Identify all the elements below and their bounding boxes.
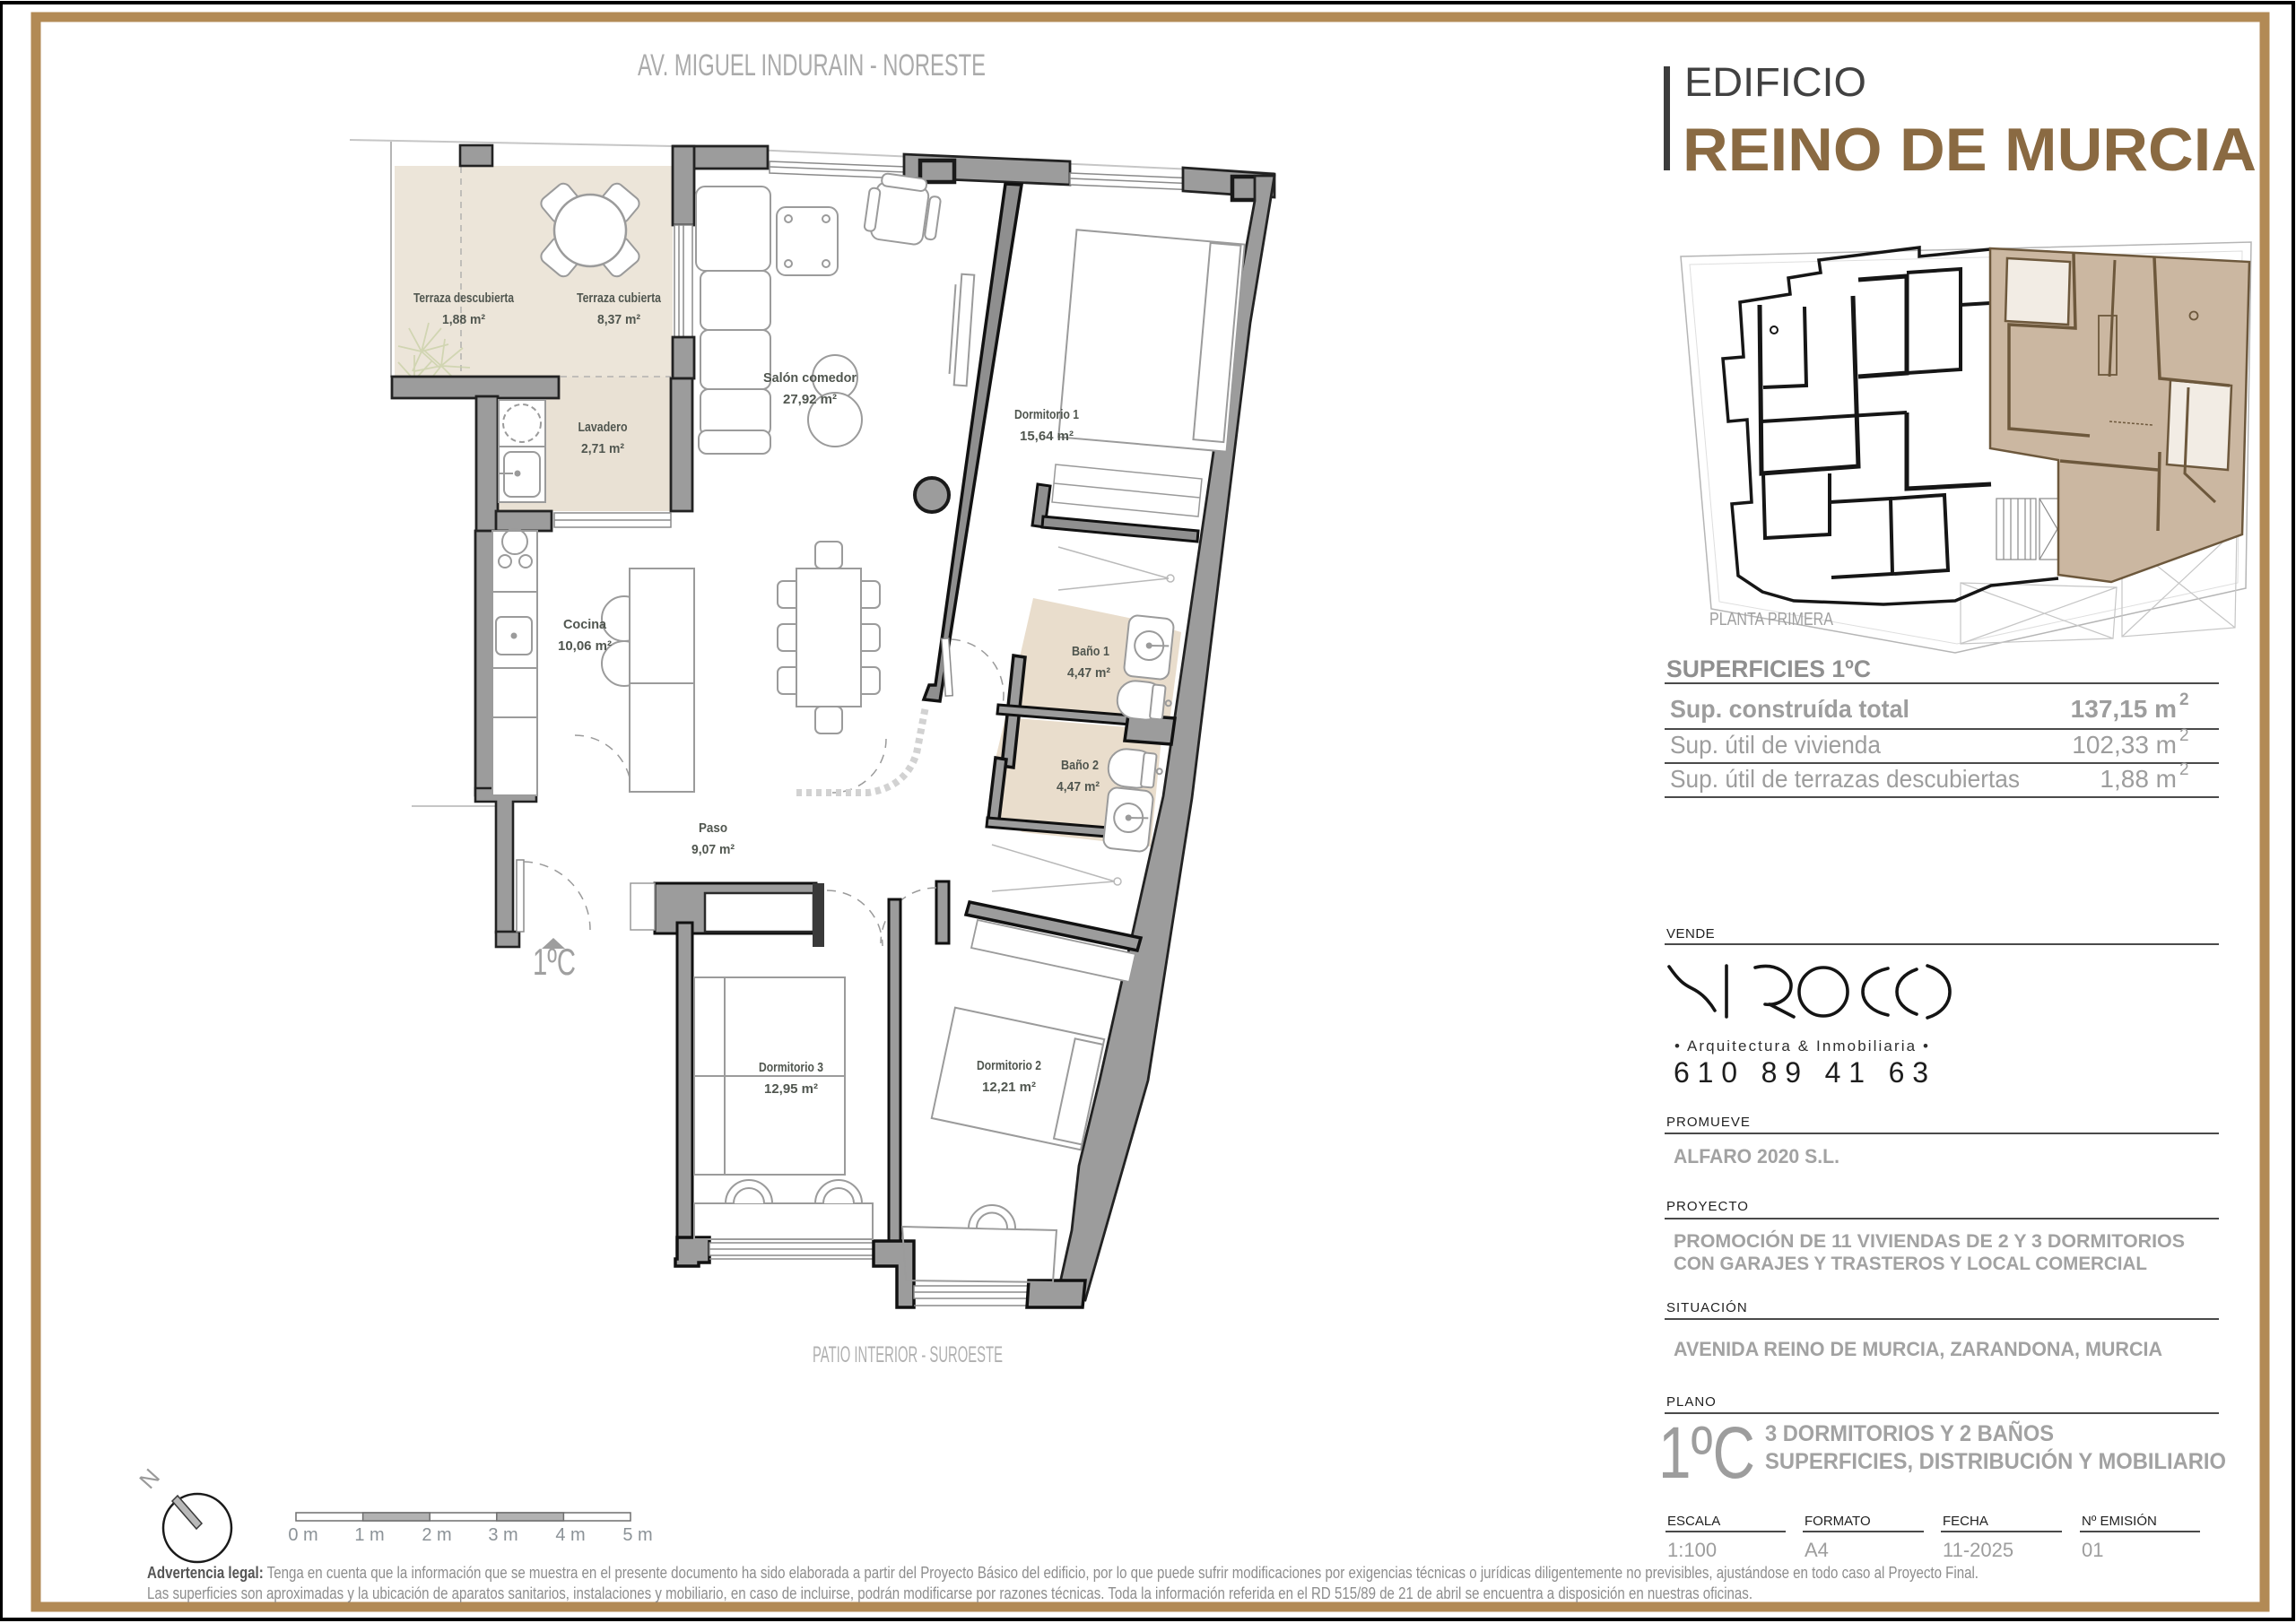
svg-text:137,15 m: 137,15 m — [2071, 695, 2177, 723]
svg-text:1,88 m: 1,88 m — [2100, 765, 2177, 793]
svg-text:Lavadero: Lavadero — [578, 420, 628, 435]
svg-text:10,06 m²: 10,06 m² — [558, 638, 612, 654]
svg-text:610 89 41 63: 610 89 41 63 — [1674, 1056, 1928, 1089]
svg-text:27,92 m²: 27,92 m² — [783, 392, 837, 407]
svg-text:01: 01 — [2082, 1539, 2103, 1561]
svg-text:ALFARO 2020 S.L.: ALFARO 2020 S.L. — [1674, 1145, 1839, 1167]
svg-text:0 m: 0 m — [288, 1525, 317, 1545]
svg-text:Paso: Paso — [699, 820, 727, 836]
svg-text:Salón comedor: Salón comedor — [763, 370, 857, 386]
svg-text:PROMUEVE: PROMUEVE — [1666, 1115, 1751, 1130]
svg-text:3 m: 3 m — [488, 1525, 517, 1545]
svg-text:1:100: 1:100 — [1667, 1539, 1717, 1561]
svg-text:4,47 m²: 4,47 m² — [1067, 665, 1110, 681]
svg-text:CON GARAJES Y TRASTEROS Y LOCA: CON GARAJES Y TRASTEROS Y LOCAL COMERCIA… — [1674, 1254, 2147, 1274]
svg-text:2 m: 2 m — [422, 1525, 451, 1545]
svg-text:5 m: 5 m — [622, 1525, 652, 1545]
svg-text:PROYECTO: PROYECTO — [1666, 1199, 1749, 1214]
svg-text:Las superficies son aproximada: Las superficies son aproximadas y la ubi… — [147, 1584, 1752, 1602]
svg-text:Sup. útil de terrazas descubie: Sup. útil de terrazas descubiertas — [1670, 765, 2020, 793]
svg-text:4,47 m²: 4,47 m² — [1057, 779, 1100, 794]
svg-text:12,95 m²: 12,95 m² — [764, 1081, 818, 1097]
svg-text:Dormitorio 2: Dormitorio 2 — [977, 1058, 1041, 1073]
svg-text:1,88 m²: 1,88 m² — [442, 312, 485, 327]
svg-text:2: 2 — [2179, 760, 2189, 779]
svg-text:2: 2 — [2179, 690, 2189, 709]
svg-text:3 DORMITORIOS Y 2 BAÑOS: 3 DORMITORIOS Y 2 BAÑOS — [1765, 1419, 2054, 1446]
svg-text:1ºC: 1ºC — [533, 941, 576, 983]
svg-text:1 m: 1 m — [354, 1525, 384, 1545]
svg-text:Terraza descubierta: Terraza descubierta — [413, 291, 515, 306]
svg-text:• Arquitectura & Inmobiliaria: • Arquitectura & Inmobiliaria • — [1674, 1037, 1928, 1055]
svg-text:REINO DE MURCIA: REINO DE MURCIA — [1683, 116, 2257, 184]
svg-text:PLANO: PLANO — [1666, 1394, 1717, 1410]
svg-text:Advertencia legal: Tenga en cu: Advertencia legal: Tenga en cuenta que l… — [147, 1564, 1979, 1582]
svg-text:Sup. construída total: Sup. construída total — [1670, 695, 1909, 723]
svg-text:Baño 1: Baño 1 — [1072, 644, 1109, 659]
svg-text:A4: A4 — [1805, 1539, 1829, 1561]
svg-text:4 m: 4 m — [555, 1525, 585, 1545]
svg-text:AV. MIGUEL INDURAIN - NORESTE: AV. MIGUEL INDURAIN - NORESTE — [638, 48, 986, 82]
svg-text:9,07 m²: 9,07 m² — [691, 842, 735, 857]
svg-text:ESCALA: ESCALA — [1667, 1514, 1720, 1529]
svg-text:12,21 m²: 12,21 m² — [982, 1080, 1036, 1095]
svg-text:SUPERFICIES 1ºC: SUPERFICIES 1ºC — [1666, 655, 1871, 682]
svg-text:VENDE: VENDE — [1666, 926, 1715, 942]
svg-text:2: 2 — [2179, 726, 2189, 745]
svg-text:SUPERFICIES, DISTRIBUCIÓN Y MO: SUPERFICIES, DISTRIBUCIÓN Y MOBILIARIO — [1765, 1447, 2226, 1474]
svg-text:Terraza cubierta: Terraza cubierta — [577, 291, 662, 306]
svg-text:Cocina: Cocina — [563, 617, 607, 632]
svg-text:1ºC: 1ºC — [1658, 1412, 1755, 1494]
svg-text:EDIFICIO: EDIFICIO — [1684, 59, 1866, 105]
svg-text:PROMOCIÓN DE 11 VIVIENDAS DE 2: PROMOCIÓN DE 11 VIVIENDAS DE 2 Y 3 DORMI… — [1674, 1230, 2185, 1252]
svg-text:11-2025: 11-2025 — [1943, 1539, 2013, 1561]
svg-text:PLANTA PRIMERA: PLANTA PRIMERA — [1709, 610, 1834, 629]
svg-text:Dormitorio 1: Dormitorio 1 — [1014, 407, 1079, 422]
svg-text:Nº EMISIÓN: Nº EMISIÓN — [2082, 1514, 2157, 1529]
svg-text:SITUACIÓN: SITUACIÓN — [1666, 1300, 1748, 1315]
svg-text:8,37 m²: 8,37 m² — [597, 312, 640, 327]
svg-text:Sup. útil de vivienda: Sup. útil de vivienda — [1670, 731, 1881, 759]
svg-text:15,64 m²: 15,64 m² — [1020, 429, 1074, 444]
svg-text:Baño 2: Baño 2 — [1061, 758, 1099, 773]
svg-text:PATIO INTERIOR - SUROESTE: PATIO INTERIOR - SUROESTE — [813, 1342, 1003, 1367]
svg-text:FORMATO: FORMATO — [1805, 1514, 1871, 1529]
svg-text:AVENIDA REINO DE MURCIA, ZARAN: AVENIDA REINO DE MURCIA, ZARANDONA, MURC… — [1674, 1338, 2162, 1360]
svg-text:Dormitorio 3: Dormitorio 3 — [759, 1060, 823, 1075]
svg-text:FECHA: FECHA — [1943, 1514, 1988, 1529]
svg-text:102,33 m: 102,33 m — [2072, 731, 2177, 759]
svg-text:2,71 m²: 2,71 m² — [581, 441, 624, 456]
